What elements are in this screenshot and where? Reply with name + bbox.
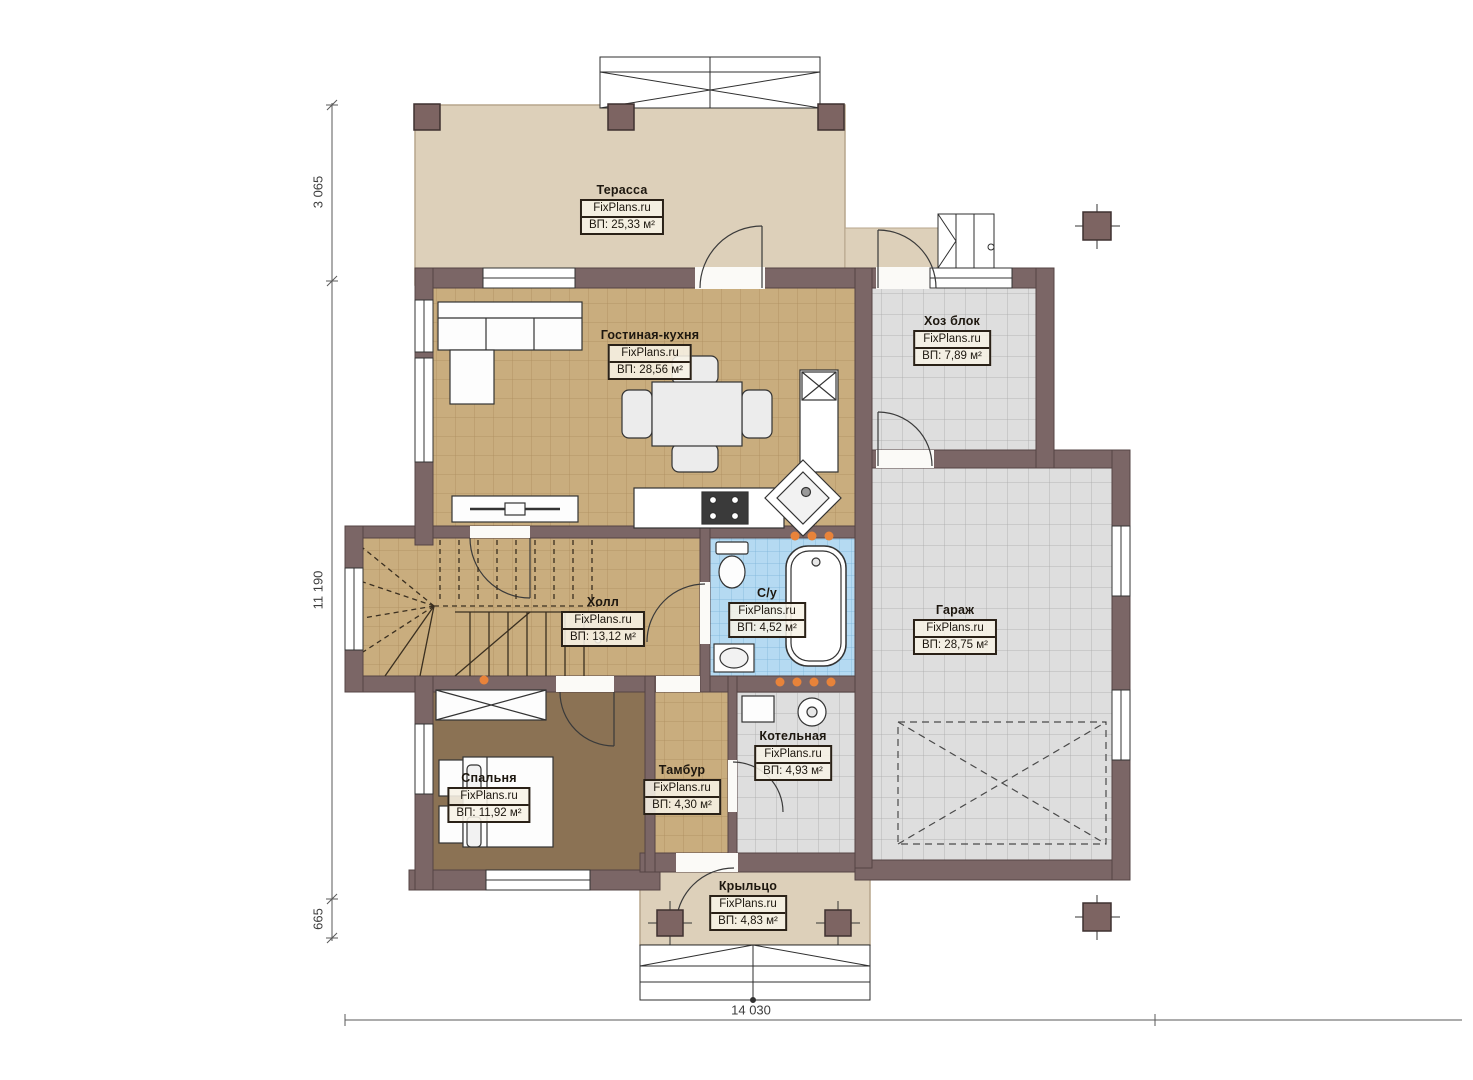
room-info-box: FixPlans.ru ВП: 4,83 м² [709,895,787,931]
room-label-bedroom: Спальня FixPlans.ru ВП: 11,92 м² [447,771,530,823]
room-info-box: FixPlans.ru ВП: 28,75 м² [913,619,997,655]
room-area: ВП: 4,83 м² [711,914,785,929]
room-name: Тамбур [643,763,721,777]
window [486,870,590,890]
room-label-garage: Гараж FixPlans.ru ВП: 28,75 м² [913,603,997,655]
terrace-canopy [600,57,820,108]
dimension-left-middle: 11 190 [311,571,326,610]
floor-plan: Терасса FixPlans.ru ВП: 25,33 м² Гостина… [0,0,1473,1080]
room-label-living-kitchen: Гостиная-кухня FixPlans.ru ВП: 28,56 м² [601,328,700,380]
room-info-box: FixPlans.ru ВП: 4,93 м² [754,745,832,781]
watermark: FixPlans.ru [711,897,785,914]
room-label-utility-block: Хоз блок FixPlans.ru ВП: 7,89 м² [913,314,991,366]
room-area: ВП: 4,30 м² [645,798,719,813]
room-label-vestibule: Тамбур FixPlans.ru ВП: 4,30 м² [643,763,721,815]
window [415,724,433,794]
watermark: FixPlans.ru [563,613,643,630]
bathroom-sink [714,644,754,672]
toilet [716,542,748,588]
room-name: Холл [561,595,645,609]
watermark: FixPlans.ru [610,346,690,363]
dimension-left-top: 3 065 [311,176,326,209]
watermark: FixPlans.ru [449,789,528,806]
room-area: ВП: 11,92 м² [449,806,528,821]
room-label-hall: Холл FixPlans.ru ВП: 13,12 м² [561,595,645,647]
room-info-box: FixPlans.ru ВП: 11,92 м² [447,787,530,823]
room-name: Крыльцо [709,879,787,893]
watermark: FixPlans.ru [582,201,662,218]
window [930,268,1012,288]
hall-floor [363,536,700,678]
watermark: FixPlans.ru [756,747,830,764]
watermark: FixPlans.ru [730,604,804,621]
room-name: Спальня [447,771,530,785]
exterior-steps [938,214,994,268]
room-info-box: FixPlans.ru ВП: 13,12 м² [561,611,645,647]
room-area: ВП: 28,75 м² [915,638,995,653]
room-name: Терасса [580,183,664,197]
watermark: FixPlans.ru [645,781,719,798]
room-name: С/у [728,586,806,600]
room-info-box: FixPlans.ru ВП: 7,89 м² [913,330,991,366]
utility-block-floor [872,286,1036,452]
dimension-left-bottom: 665 [311,908,326,930]
room-area: ВП: 7,89 м² [915,349,989,364]
watermark: FixPlans.ru [915,621,995,638]
room-label-porch: Крыльцо FixPlans.ru ВП: 4,83 м² [709,879,787,931]
window [1112,526,1130,596]
garage-floor [872,466,1112,862]
watermark: FixPlans.ru [915,332,989,349]
room-area: ВП: 13,12 м² [563,630,643,645]
window [345,568,363,650]
room-area: ВП: 4,52 м² [730,621,804,636]
room-area: ВП: 28,56 м² [610,363,690,378]
room-info-box: FixPlans.ru ВП: 4,52 м² [728,602,806,638]
room-label-boiler-room: Котельная FixPlans.ru ВП: 4,93 м² [754,729,832,781]
room-name: Хоз блок [913,314,991,328]
terrace-slab [415,105,940,285]
window [415,300,433,352]
room-info-box: FixPlans.ru ВП: 25,33 м² [580,199,664,235]
tv-stand [452,496,578,522]
window [415,358,433,462]
room-info-box: FixPlans.ru ВП: 28,56 м² [608,344,692,380]
column-marker [1075,204,1120,249]
room-area: ВП: 4,93 м² [756,764,830,779]
room-name: Гостиная-кухня [601,328,700,342]
room-name: Гараж [913,603,997,617]
column-marker [1075,895,1120,940]
window [483,268,575,288]
window [1112,690,1130,760]
room-label-terrace: Терасса FixPlans.ru ВП: 25,33 м² [580,183,664,235]
wardrobe [436,690,546,720]
room-name: Котельная [754,729,832,743]
room-label-bathroom: С/у FixPlans.ru ВП: 4,52 м² [728,586,806,638]
dimension-bottom: 14 030 [731,1003,771,1018]
room-area: ВП: 25,33 м² [582,218,662,233]
room-info-box: FixPlans.ru ВП: 4,30 м² [643,779,721,815]
porch-steps [640,945,870,1003]
